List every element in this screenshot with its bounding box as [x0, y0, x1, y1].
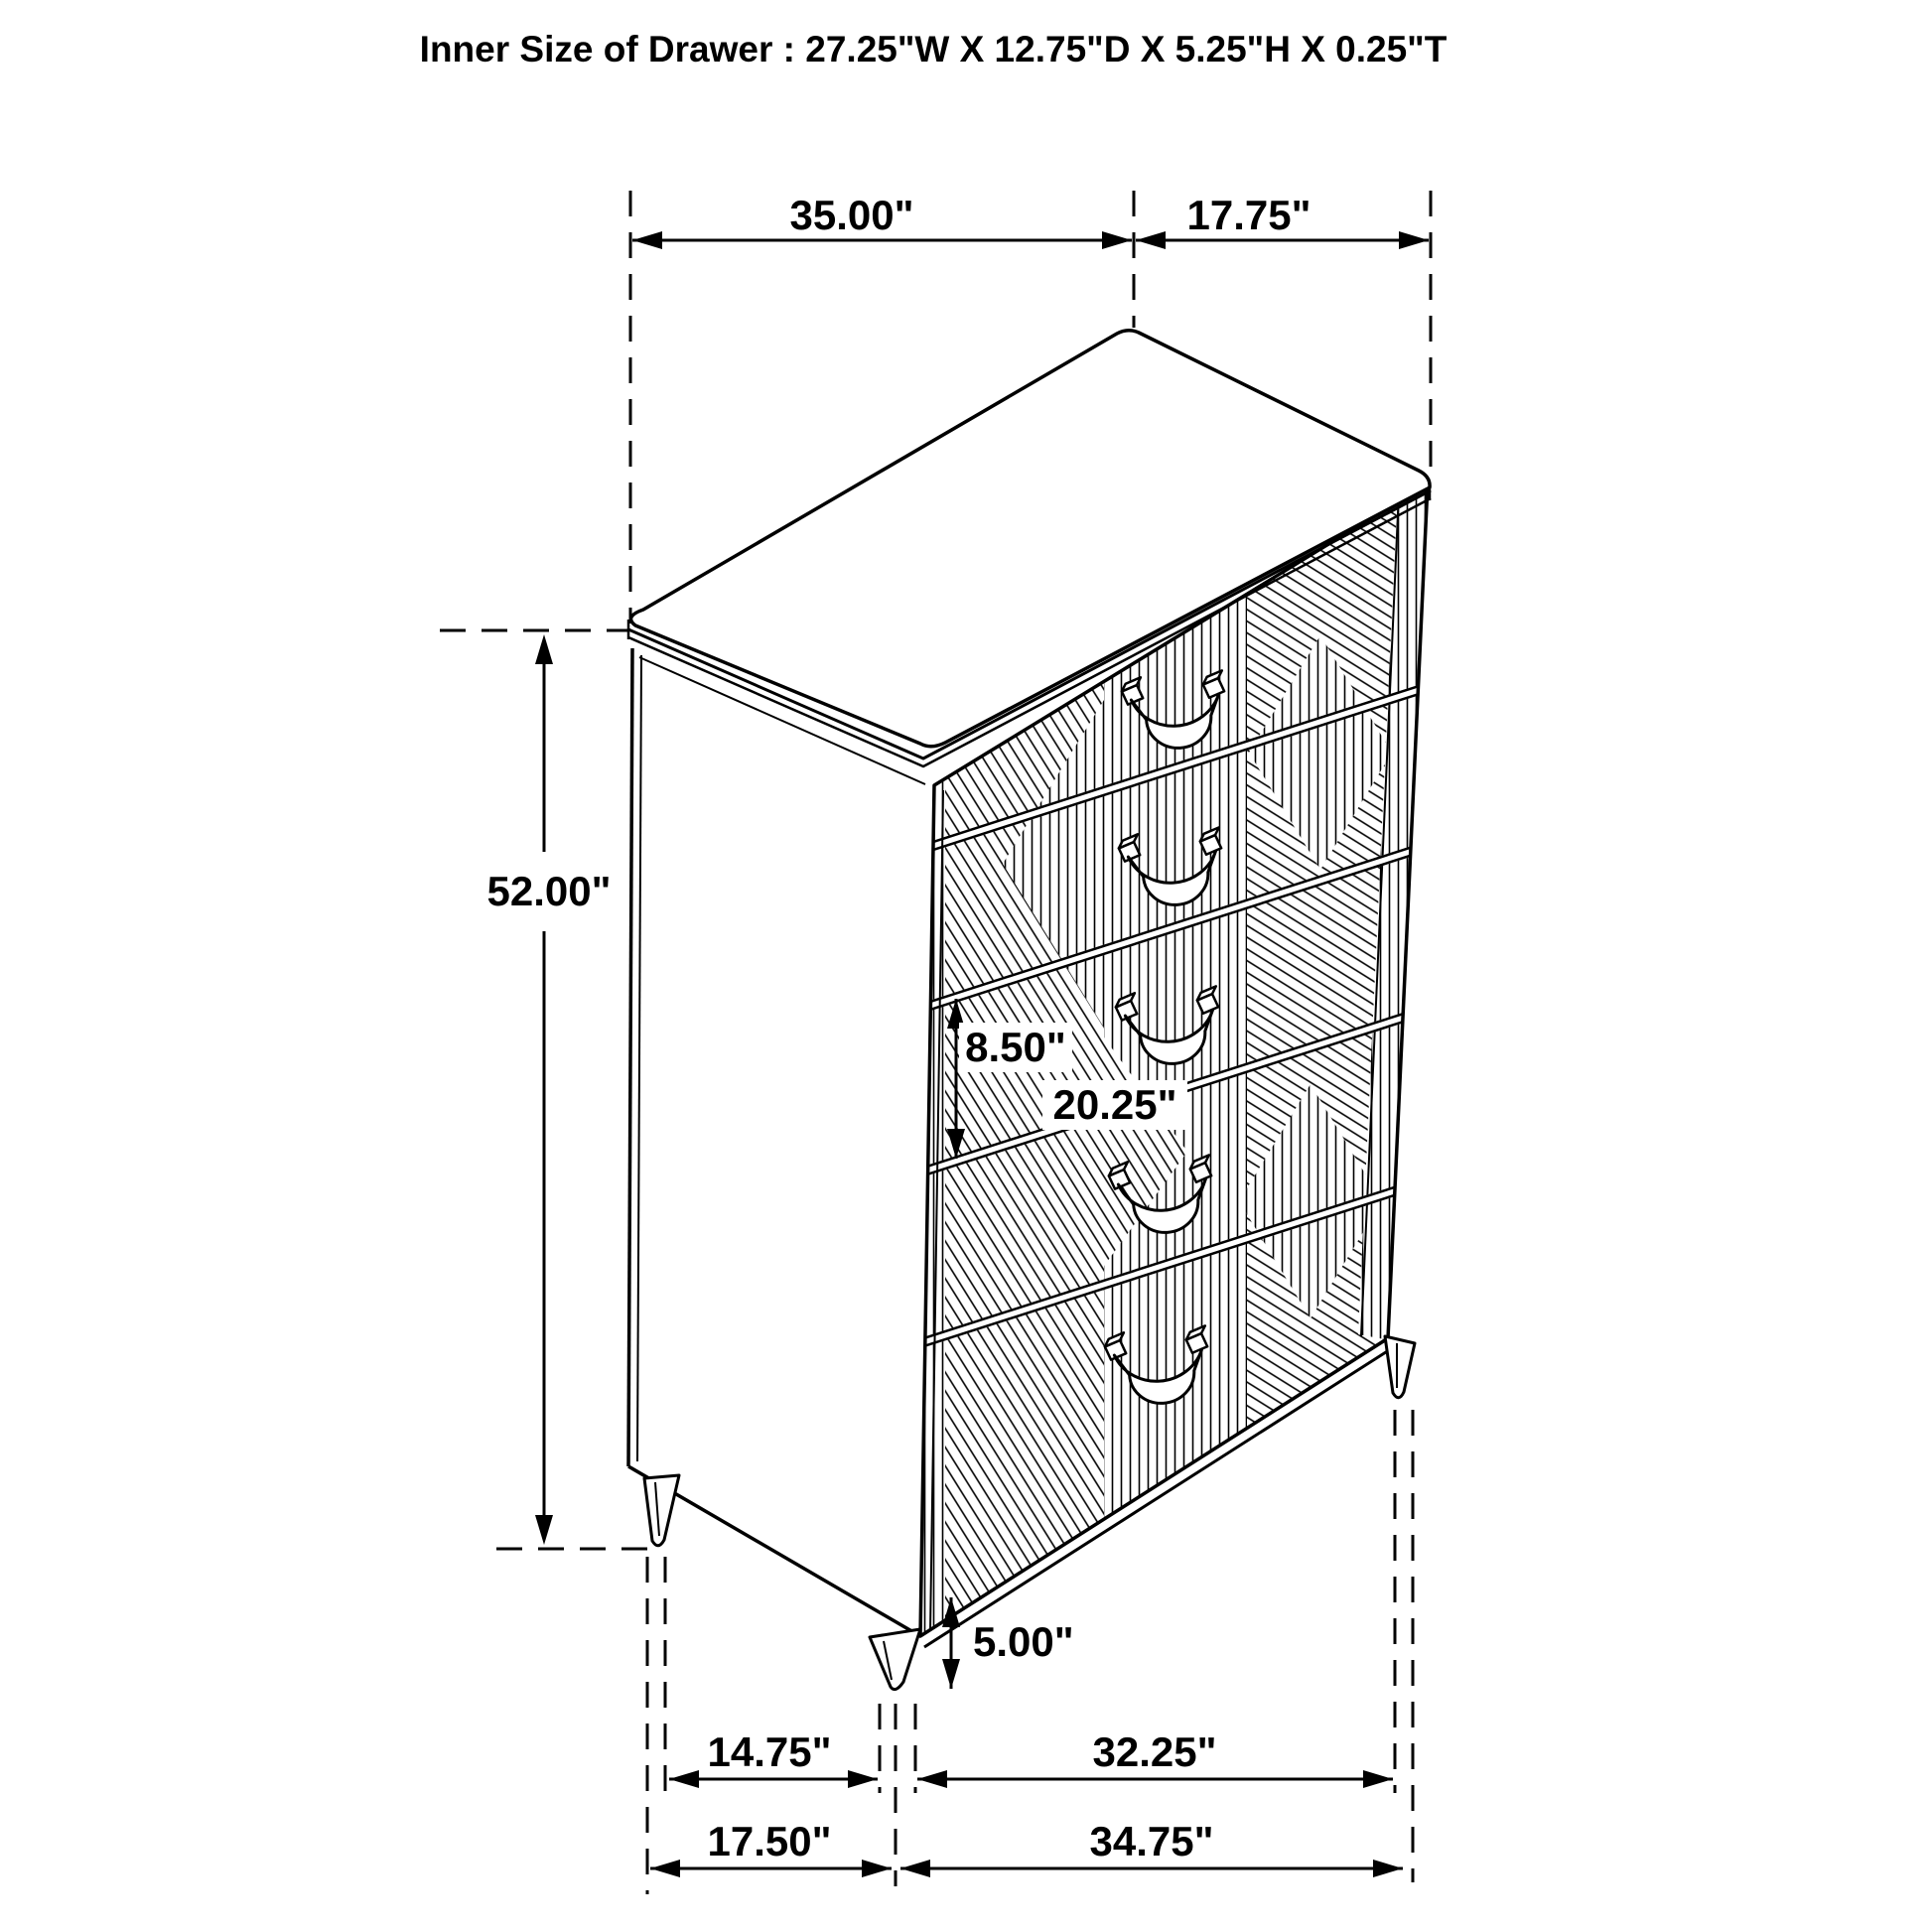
dim-label-height: 52.00"	[486, 868, 611, 914]
dim-label-leg-height: 5.00"	[973, 1618, 1074, 1665]
furniture-dimension-diagram: Inner Size of Drawer : 27.25"W X 12.75"D…	[0, 0, 1932, 1932]
page-title: Inner Size of Drawer : 27.25"W X 12.75"D…	[420, 29, 1448, 69]
dim-label-drawer-front-height: 8.50"	[965, 1024, 1066, 1070]
diagram-page: Inner Size of Drawer : 27.25"W X 12.75"D…	[0, 0, 1932, 1932]
dim-label-bottom-left-inner: 14.75"	[707, 1728, 831, 1775]
dim-label-top-depth: 17.75"	[1186, 192, 1311, 238]
dim-label-bottom-left-outer: 17.50"	[707, 1818, 831, 1864]
dim-label-drawer-front-width: 20.25"	[1052, 1081, 1176, 1128]
dim-label-bottom-right-inner: 32.25"	[1092, 1728, 1216, 1775]
dim-label-bottom-right-outer: 34.75"	[1089, 1818, 1213, 1864]
dim-drawer-front-width: 20.25"	[1042, 1080, 1187, 1130]
dim-label-top-width: 35.00"	[789, 192, 913, 238]
